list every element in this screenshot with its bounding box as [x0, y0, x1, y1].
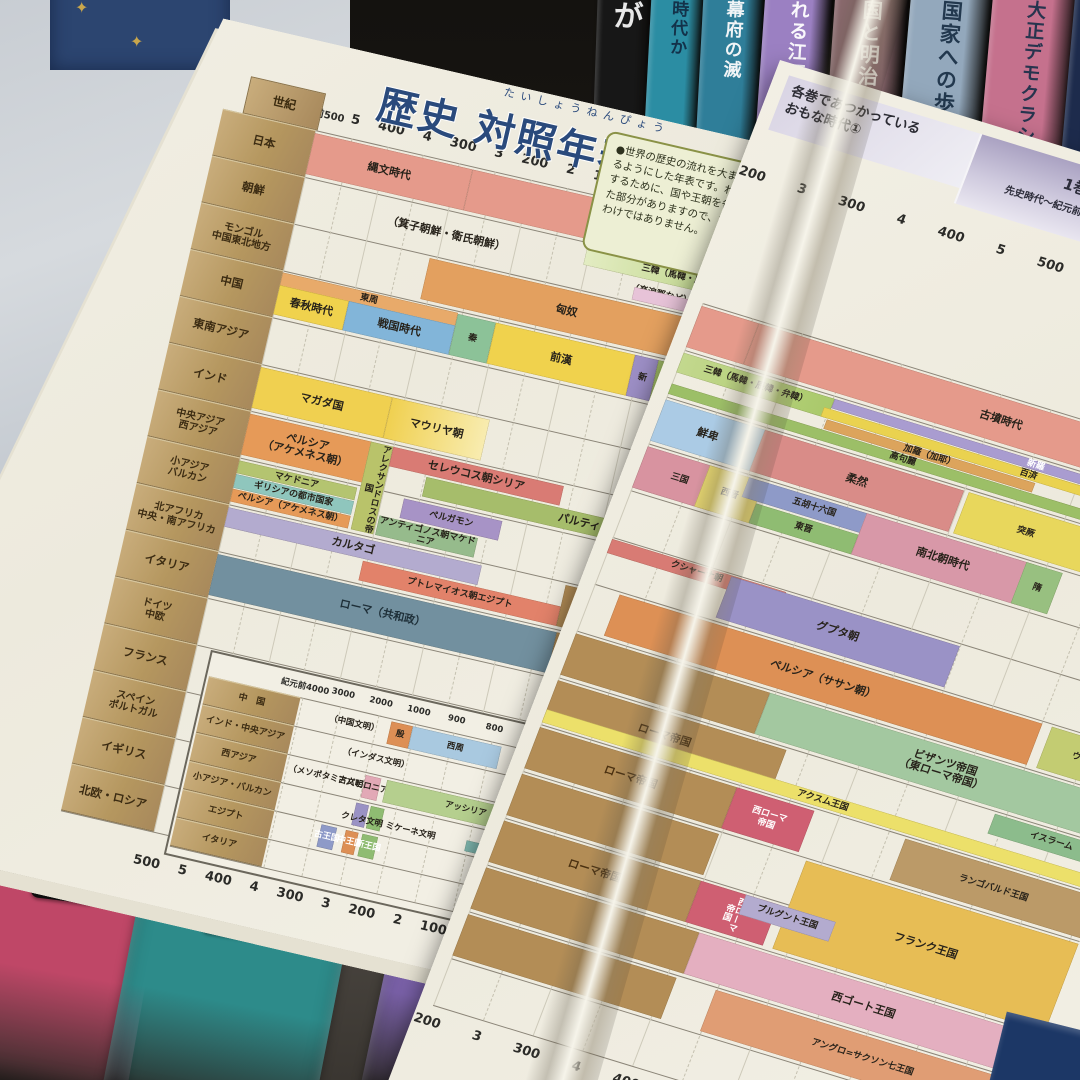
bar-label: 春秋時代	[288, 297, 334, 319]
bar-label: 古墳時代	[978, 408, 1025, 432]
bar-label: ローマ（共和政）	[338, 598, 427, 630]
tick-label: 400	[203, 869, 233, 890]
tick-label: 200	[347, 902, 377, 923]
bar-label: 隋	[1031, 582, 1043, 594]
bar-label: ウマイヤ朝	[1070, 751, 1080, 774]
gold-spark-icon: ✦	[75, 0, 88, 17]
inset-bar-label: 新王国	[354, 839, 381, 854]
photo-scene: ✦ ✦ ❀ ❧ ❀ ❧ 一 国 が時代か幕府の滅れる江戸幕府国と明治維新国家への…	[0, 0, 1080, 1080]
tick-label: 200	[411, 1010, 442, 1032]
book-spine-title: が	[608, 0, 642, 33]
tick-label: 3	[320, 895, 332, 912]
inset-bar: 新王国	[357, 834, 378, 860]
bar-label: マウリヤ朝	[408, 417, 464, 441]
tick-label: 4	[894, 212, 908, 229]
bar-label: 戦国時代	[376, 317, 422, 339]
book-spine-title: 幕府の滅	[720, 0, 744, 80]
tick-label: 5	[994, 242, 1008, 259]
bar-label: 西ゴート王国	[830, 990, 898, 1021]
inset-tick-label: 1000	[406, 704, 431, 719]
inset-tick-label: 800	[485, 722, 505, 736]
bar-label: マガダ国	[299, 392, 345, 414]
bar-label: グプタ朝	[814, 620, 861, 644]
bar-label: 前漢	[549, 351, 573, 368]
bar-label: カルタゴ	[330, 535, 376, 557]
inset-tick-label: 3000	[331, 686, 356, 701]
bar-label: 新	[637, 372, 648, 384]
bar-label: 秦	[467, 333, 478, 345]
inset-bar: （インダス文明）	[347, 742, 405, 777]
inset-bar: （中国文明）	[317, 705, 390, 743]
volume1-segment: 1巻 先史時代〜紀元前400年ごろ	[954, 134, 1080, 266]
inset-bar: 古王国	[316, 824, 337, 850]
bar-label: ペルガモン	[428, 510, 474, 530]
bar-label: 南北朝時代	[914, 546, 971, 574]
inset-bar-label: 殷	[395, 729, 405, 740]
bar-label: 突厥	[1015, 525, 1036, 540]
inset-bar-label: （中国文明）	[328, 714, 380, 735]
bar-label: 西ローマ 帝国	[747, 805, 789, 834]
bar-label: 東晋	[793, 521, 814, 536]
bar-label: 三国	[669, 472, 690, 487]
book-spine-title: 時代か	[666, 0, 688, 57]
tick-label: 500	[1035, 255, 1066, 277]
tick-label: 2	[391, 912, 403, 929]
inset-tick-label: 2000	[368, 695, 393, 710]
tick-label: 300	[275, 885, 305, 906]
tick-label: 500	[132, 852, 162, 873]
gold-spark-icon: ✦	[130, 32, 143, 51]
tick-label: 3	[470, 1028, 484, 1045]
tick-label: 5	[176, 862, 188, 879]
tick-label: 400	[935, 224, 966, 246]
bar-label: 柔然	[844, 472, 869, 490]
bar-label: 匈奴	[554, 303, 578, 320]
tick-label: 5	[349, 112, 361, 129]
tick-label: 200	[736, 163, 767, 185]
inset-bar-label: 西周	[446, 741, 465, 754]
bar-label: ランゴバルド王国	[957, 873, 1029, 903]
tick-label: 400	[610, 1071, 641, 1080]
inset-bar-label: アッシリア	[444, 800, 488, 819]
bar-label: ペルシア （アケメネス朝）	[261, 426, 352, 470]
tick-label: 4	[248, 879, 260, 896]
inset-tick-label: 900	[447, 713, 467, 727]
bar-label: フランク王国	[892, 931, 960, 962]
bar-label: 縄文時代	[366, 161, 412, 183]
